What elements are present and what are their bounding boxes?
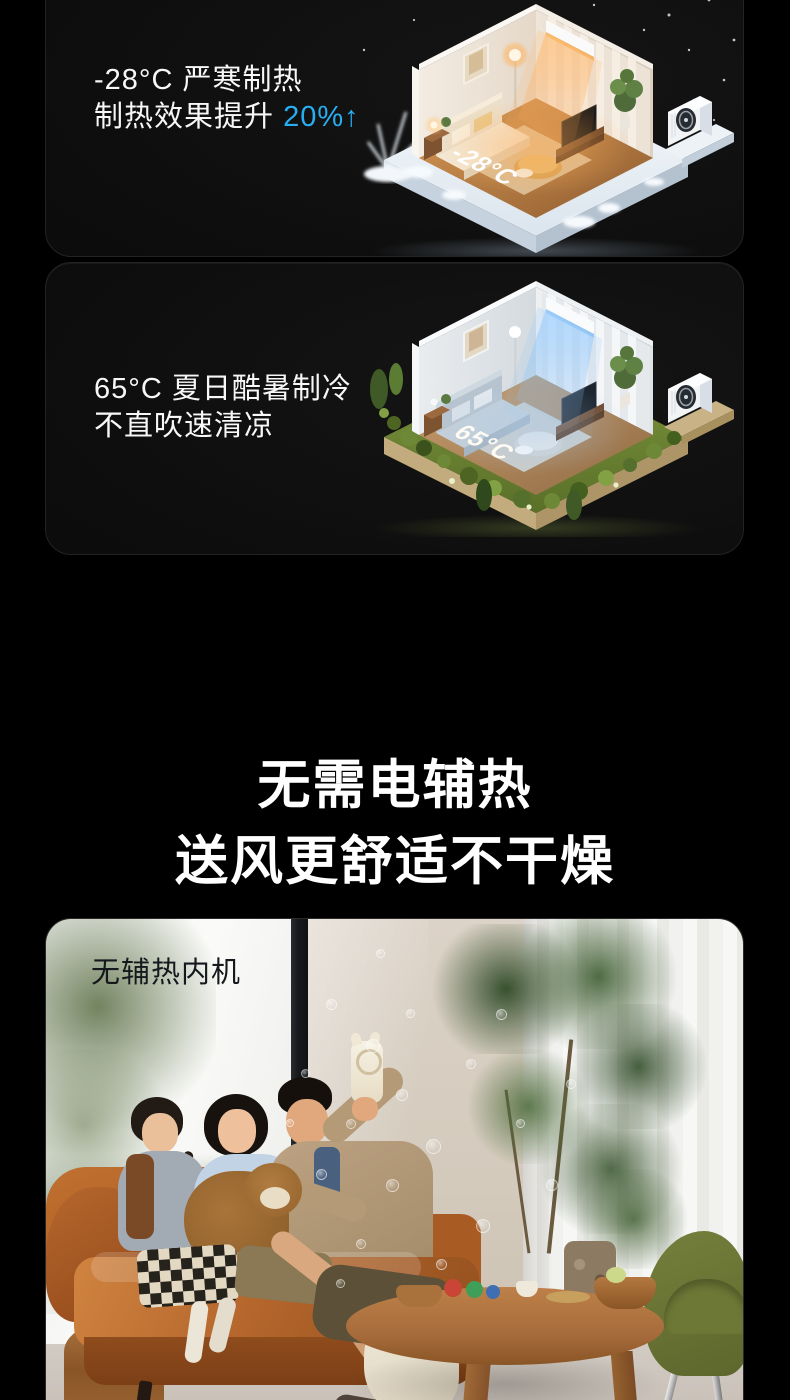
cold-card-caption: -28°C 严寒制热 制热效果提升 20%↑ bbox=[94, 62, 360, 136]
soap-bubble bbox=[336, 1279, 345, 1288]
heading-line2: 送风更舒适不干燥 bbox=[0, 824, 790, 900]
soap-bubble bbox=[366, 1039, 380, 1053]
soap-bubble bbox=[546, 1179, 558, 1191]
winter-room-illustration: -28°C bbox=[324, 0, 744, 257]
feature-card-hot-cooling: 65°C 夏日酷暑制冷 不直吹速清凉 bbox=[45, 262, 744, 555]
hot-card-caption: 65°C 夏日酷暑制冷 不直吹速清凉 bbox=[94, 371, 352, 445]
toy-ball-green bbox=[466, 1281, 483, 1298]
girl-vest bbox=[126, 1154, 154, 1239]
heading-line1: 无需电辅热 bbox=[0, 748, 790, 824]
soap-bubble bbox=[301, 1069, 310, 1078]
soap-bubble bbox=[326, 999, 337, 1010]
section-heading: 无需电辅热 送风更舒适不干燥 bbox=[0, 748, 790, 900]
toy-ball-red bbox=[444, 1279, 462, 1297]
feature-card-cold-heating: -28°C 严寒制热 制热效果提升 20%↑ bbox=[45, 0, 744, 257]
soap-bubble bbox=[436, 1259, 447, 1270]
photo-card-label: 无辅热内机 bbox=[91, 949, 241, 991]
hot-card-line1: 65°C 夏日酷暑制冷 bbox=[94, 371, 352, 408]
soap-bubble bbox=[376, 949, 385, 958]
soap-bubble bbox=[386, 1179, 399, 1192]
summer-room-illustration: 65°C bbox=[324, 262, 744, 537]
soap-bubble bbox=[466, 1059, 476, 1069]
toy-ball-blue bbox=[486, 1285, 500, 1299]
small-bowl bbox=[396, 1285, 442, 1307]
soap-bubble bbox=[286, 1119, 294, 1127]
soap-bubble bbox=[496, 1009, 507, 1020]
soap-bubble bbox=[356, 1239, 366, 1249]
lifestyle-photo-card: 无辅热内机 bbox=[45, 918, 744, 1400]
soap-bubble bbox=[396, 1089, 408, 1101]
fruit bbox=[606, 1267, 626, 1283]
product-detail-page: -28°C 严寒制热 制热效果提升 20%↑ bbox=[0, 0, 790, 1400]
soap-bubble bbox=[406, 1009, 415, 1018]
small-plate bbox=[546, 1291, 590, 1303]
hot-card-line2: 不直吹速清凉 bbox=[94, 408, 352, 445]
girl-face bbox=[142, 1113, 178, 1153]
soap-bubble bbox=[316, 1169, 327, 1180]
cold-card-line1: -28°C 严寒制热 bbox=[94, 62, 360, 99]
soap-bubble bbox=[426, 1139, 441, 1154]
sofa-leg bbox=[136, 1380, 152, 1400]
heating-boost-value: 20%↑ bbox=[283, 101, 360, 133]
father-hand bbox=[352, 1097, 378, 1121]
soap-bubble bbox=[476, 1219, 490, 1233]
soap-bubble bbox=[516, 1119, 525, 1128]
teddy-bear-muzzle bbox=[260, 1187, 290, 1209]
mother-face bbox=[218, 1109, 256, 1153]
cold-card-line2: 制热效果提升 20%↑ bbox=[94, 99, 360, 136]
toy-ring bbox=[356, 1049, 382, 1075]
soap-bubble bbox=[566, 1079, 576, 1089]
wooden-bowl bbox=[594, 1277, 656, 1309]
soap-bubble bbox=[346, 1119, 356, 1129]
